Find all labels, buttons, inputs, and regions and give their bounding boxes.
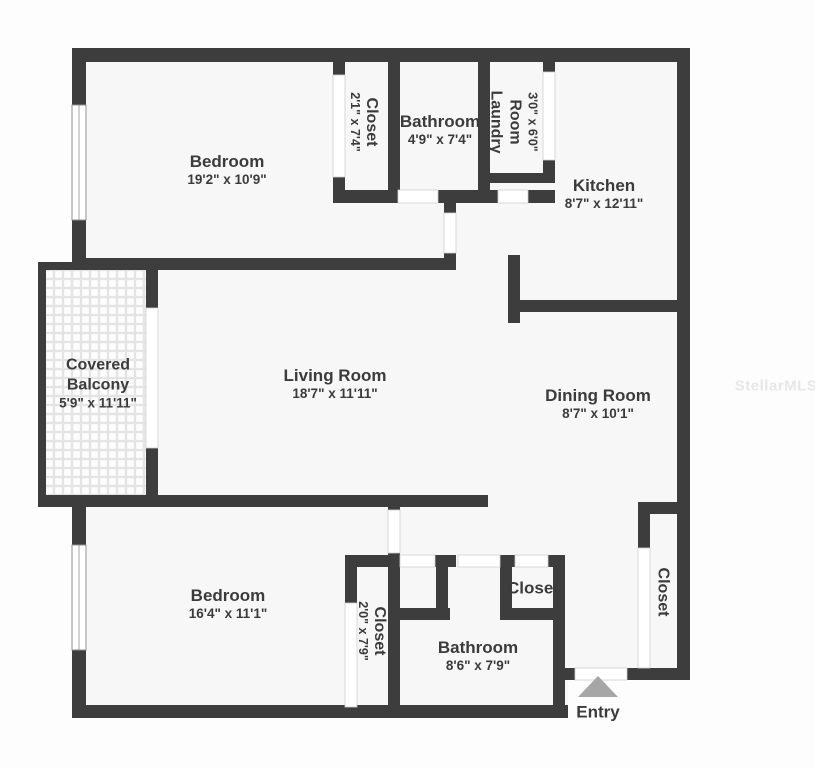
floorplan-page: Bedroom 19'2" x 10'9" Closet 2'1" x 7'4"… — [0, 0, 815, 768]
floor-layer — [38, 48, 690, 718]
floorplan-canvas — [0, 0, 815, 768]
balcony-floor — [38, 262, 158, 507]
